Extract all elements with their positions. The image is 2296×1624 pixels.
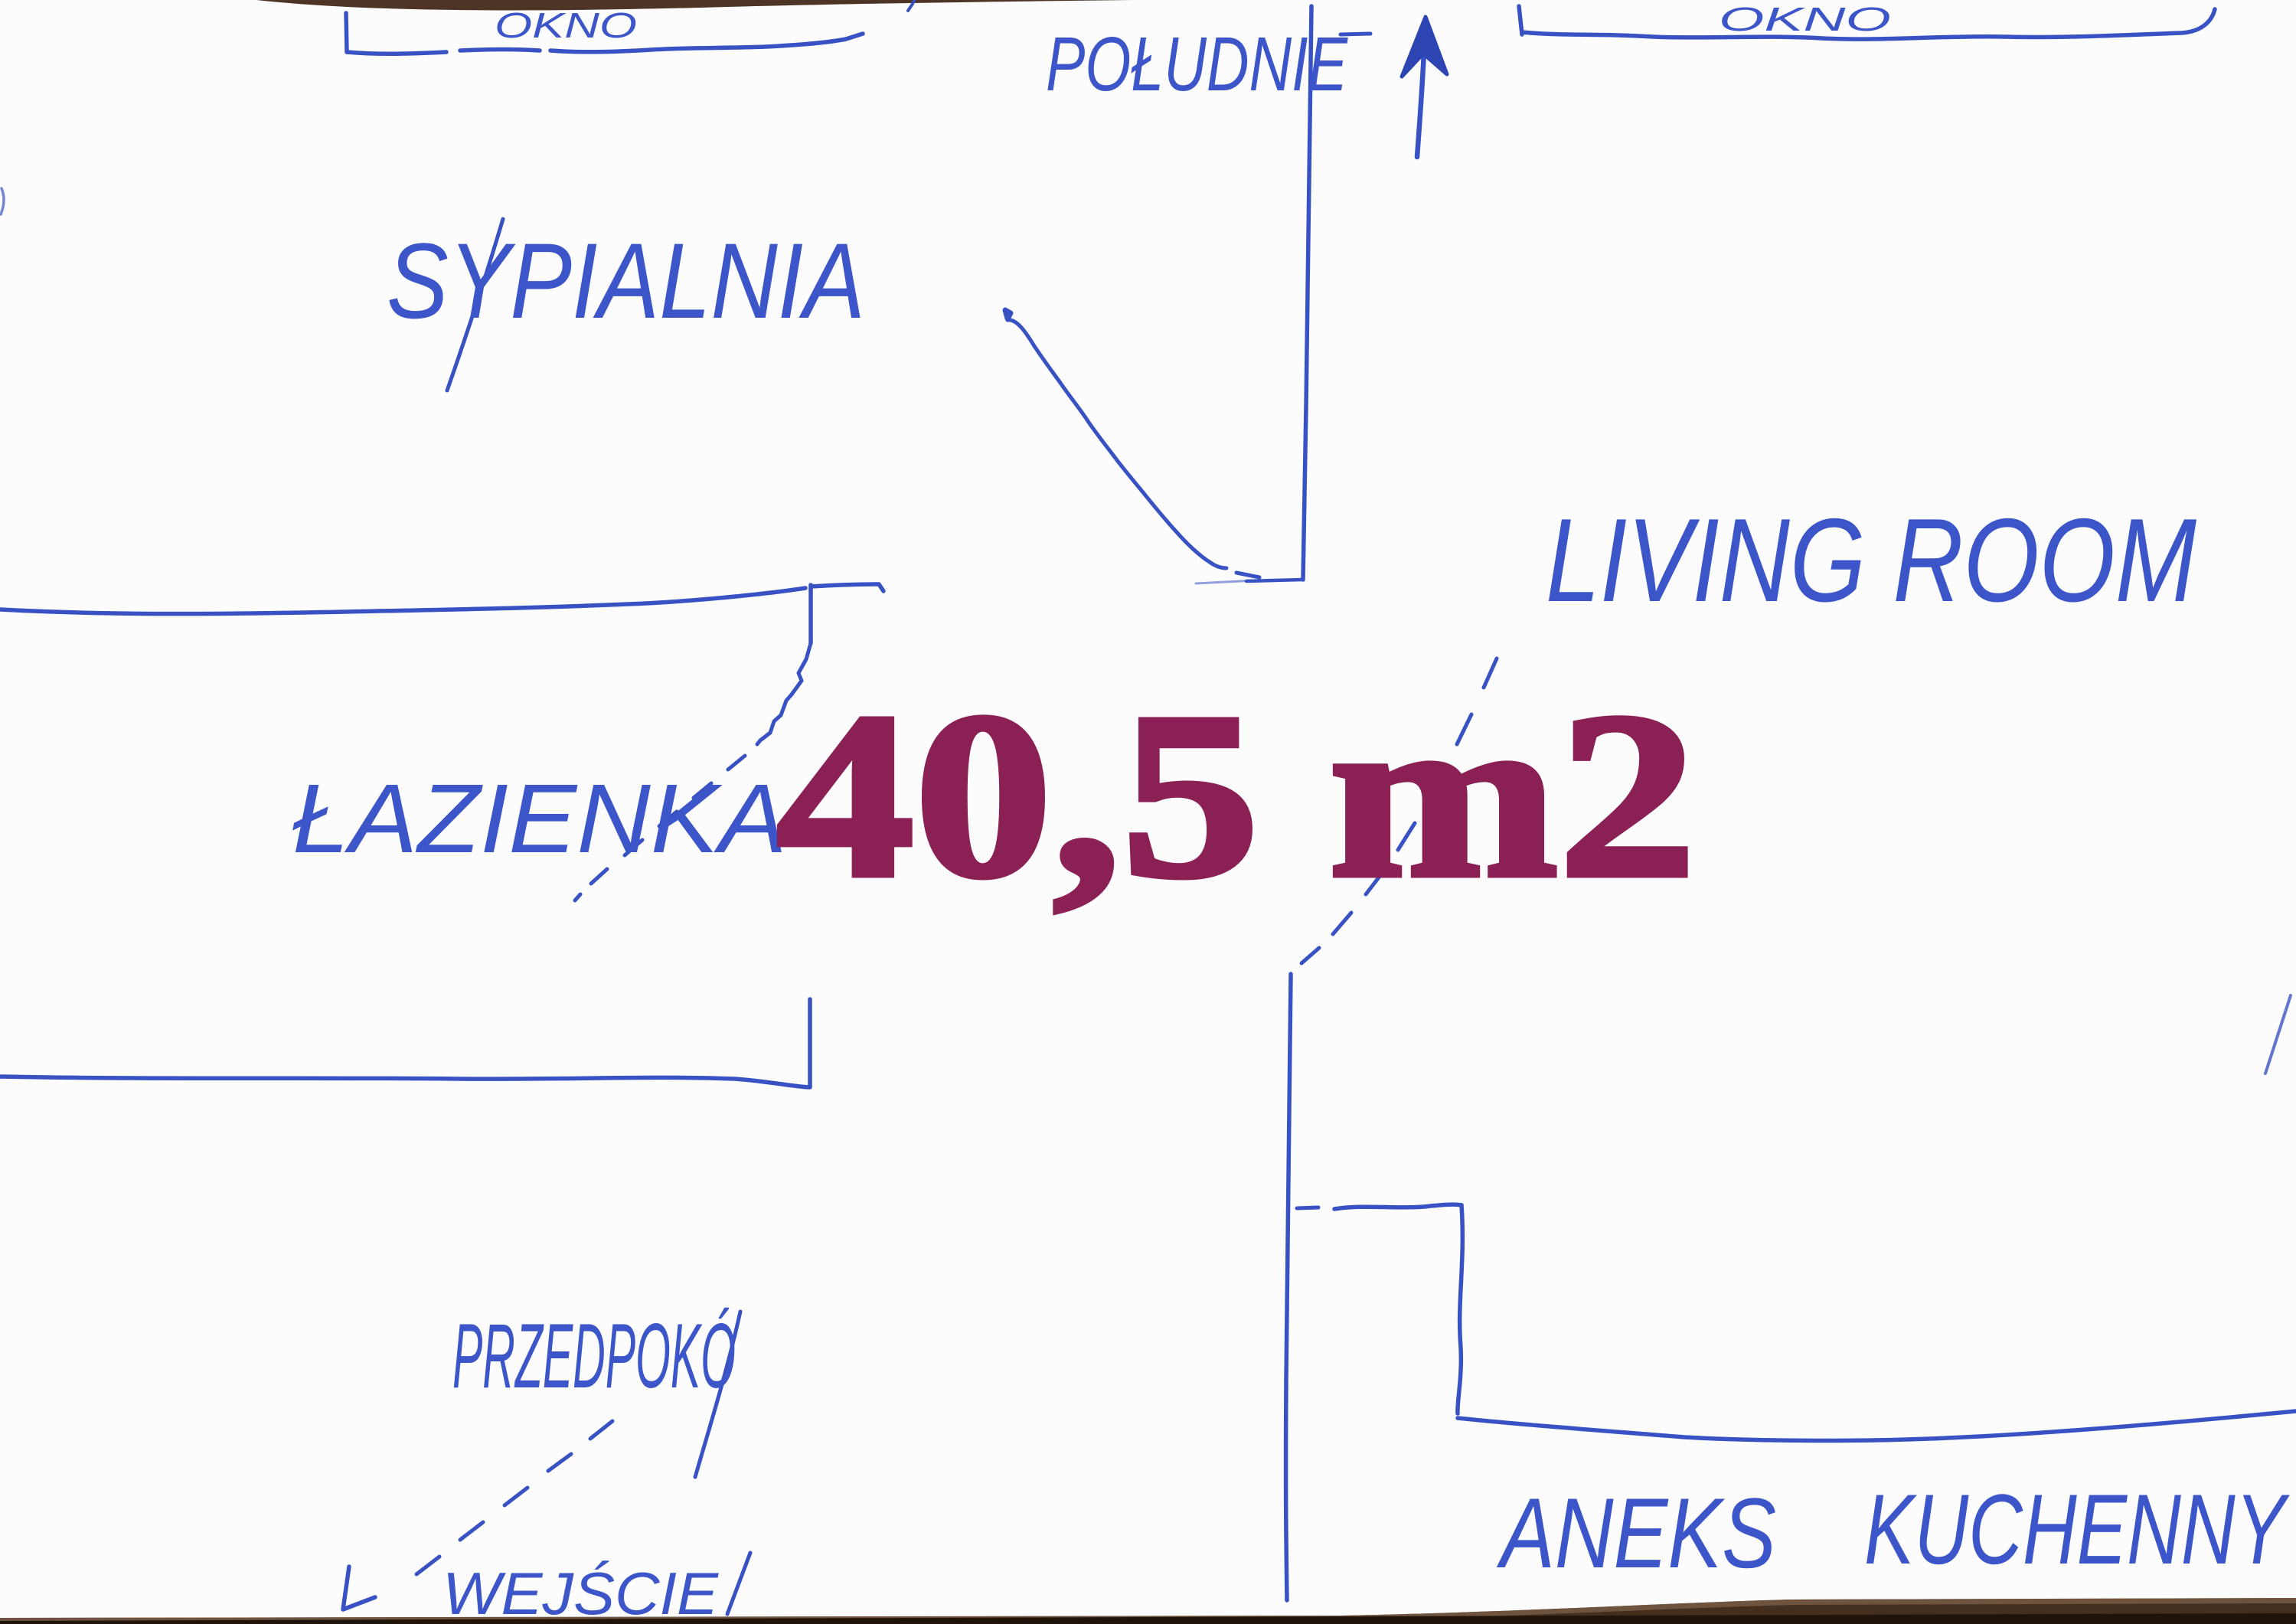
svg-text:KUCHENNY: KUCHENNY [1864, 1473, 2290, 1585]
svg-text:POŁUDNIE: POŁUDNIE [1046, 21, 1348, 107]
svg-text:LIVING ROOM: LIVING ROOM [1546, 494, 2197, 626]
svg-text:PRZEDPOKÓ: PRZEDPOKÓ [452, 1305, 736, 1407]
svg-text:ANEKS: ANEKS [1496, 1477, 1776, 1589]
svg-text:SYPIALNIA: SYPIALNIA [387, 221, 865, 341]
svg-text:ŁAZIENKA: ŁAZIENKA [292, 764, 787, 874]
svg-text:WEJŚCIE: WEJŚCIE [443, 1560, 719, 1624]
svg-text:OKNO: OKNO [1719, 1, 1891, 38]
svg-text:40,5 m2: 40,5 m2 [776, 665, 1697, 927]
svg-text:OKNO: OKNO [495, 5, 637, 45]
